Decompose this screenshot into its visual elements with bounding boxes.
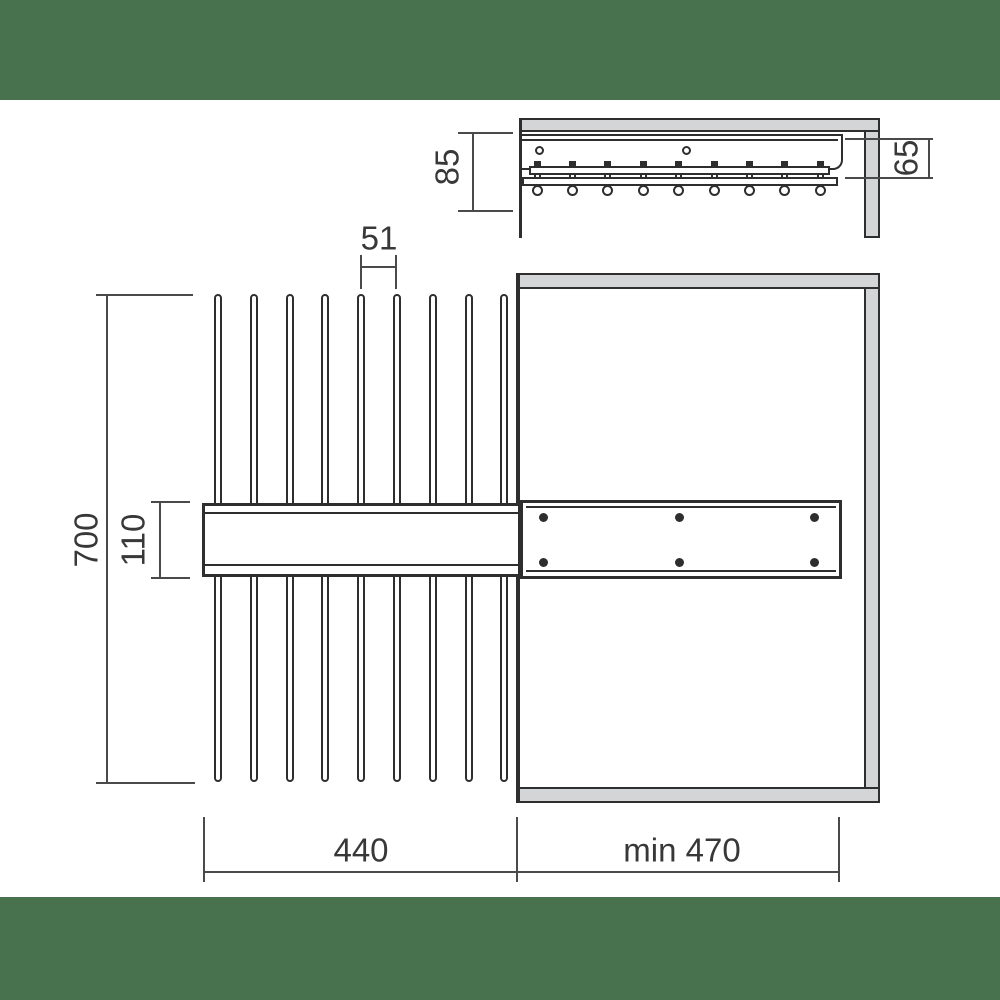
- dim-110-extension-bottom: [151, 577, 190, 579]
- rod-end-ring: [602, 185, 613, 196]
- plate-screw-hole: [810, 558, 819, 567]
- cabinet-top-panel: [519, 118, 880, 132]
- dim-65-label: 65: [890, 140, 923, 177]
- dim-440-extension-left: [203, 817, 205, 882]
- cabinet-side-wall: [864, 273, 880, 803]
- bracket-screw-hole: [535, 146, 544, 155]
- cabinet-wall-bottom: [516, 787, 880, 803]
- dim-110-label: 110: [117, 514, 150, 567]
- dim-440-label: 440: [333, 834, 388, 867]
- mounting-plate-profile-line: [526, 570, 836, 572]
- hook-tab: [604, 161, 611, 168]
- rod-end-ring: [744, 185, 755, 196]
- dim-110-extension-top: [151, 501, 190, 503]
- dim-65-extension-bottom: [845, 177, 933, 179]
- dim-51-extension-left: [360, 255, 362, 289]
- dim-51-extension-right: [395, 255, 397, 289]
- dim-min-470-label: min 470: [623, 834, 740, 867]
- pullout-rail-profile-line: [205, 564, 518, 566]
- dim-85-extension-bottom: [458, 210, 513, 212]
- dim-85-line: [472, 132, 474, 212]
- plate-screw-hole: [539, 513, 548, 522]
- dim-85-extension-top: [458, 132, 513, 134]
- rod-end-ring: [673, 185, 684, 196]
- hook-tab: [640, 161, 647, 168]
- dim-700-extension-top: [96, 294, 193, 296]
- mounting-plate: [520, 500, 842, 579]
- plate-screw-hole: [539, 558, 548, 567]
- dim-65-line: [928, 138, 930, 179]
- dim-51-label: 51: [361, 222, 398, 255]
- mounting-plate-profile-line: [526, 506, 836, 508]
- dim-470-extension-right: [838, 817, 840, 882]
- bracket-screw-hole: [682, 146, 691, 155]
- hook-tab: [534, 161, 541, 168]
- hook-tab: [781, 161, 788, 168]
- dim-bottom-line: [204, 871, 840, 873]
- dim-85-label: 85: [431, 149, 464, 186]
- bottom-green-band: [0, 897, 1000, 1000]
- plate-screw-hole: [675, 513, 684, 522]
- dim-700-label: 700: [70, 512, 103, 567]
- pullout-rail-profile-line: [205, 512, 518, 514]
- technical-drawing-canvas: 85 65 700 110: [0, 0, 1000, 1000]
- dim-700-line: [106, 294, 108, 784]
- dim-110-line: [159, 501, 161, 579]
- rod-end-ring: [709, 185, 720, 196]
- bracket-profile-line: [522, 139, 838, 141]
- dim-700-extension-bottom: [96, 782, 195, 784]
- hook-tab: [746, 161, 753, 168]
- rod-end-ring: [779, 185, 790, 196]
- rod-end-ring: [638, 185, 649, 196]
- dim-440-470-extension-mid: [516, 817, 518, 882]
- plate-screw-hole: [810, 513, 819, 522]
- hook-tab: [817, 161, 824, 168]
- hook-tab: [569, 161, 576, 168]
- cabinet-wall-top: [516, 273, 880, 289]
- plate-screw-hole: [675, 558, 684, 567]
- top-green-band: [0, 0, 1000, 100]
- rod-end-ring: [815, 185, 826, 196]
- rod-end-ring: [532, 185, 543, 196]
- rod-end-ring: [567, 185, 578, 196]
- hook-tab: [711, 161, 718, 168]
- hook-tab: [675, 161, 682, 168]
- dim-51-line: [360, 266, 397, 268]
